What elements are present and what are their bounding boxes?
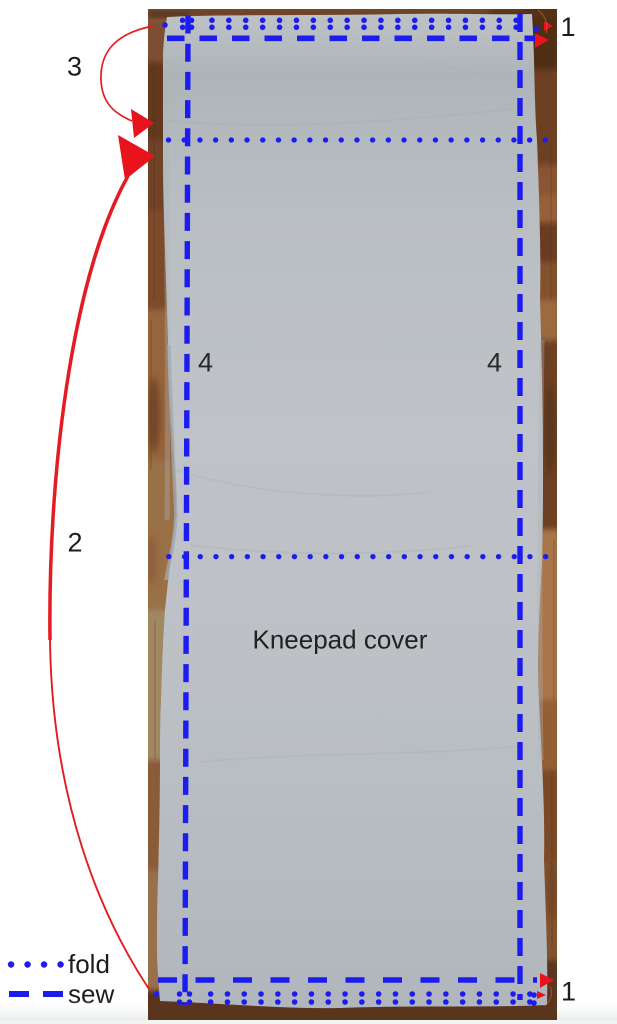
svg-text:4: 4: [198, 348, 213, 378]
svg-text:2: 2: [68, 528, 83, 558]
svg-text:Kneepad cover: Kneepad cover: [253, 625, 428, 655]
svg-text:3: 3: [67, 52, 82, 82]
svg-text:fold: fold: [68, 949, 110, 979]
svg-text:4: 4: [487, 348, 502, 378]
svg-text:1: 1: [561, 12, 576, 42]
